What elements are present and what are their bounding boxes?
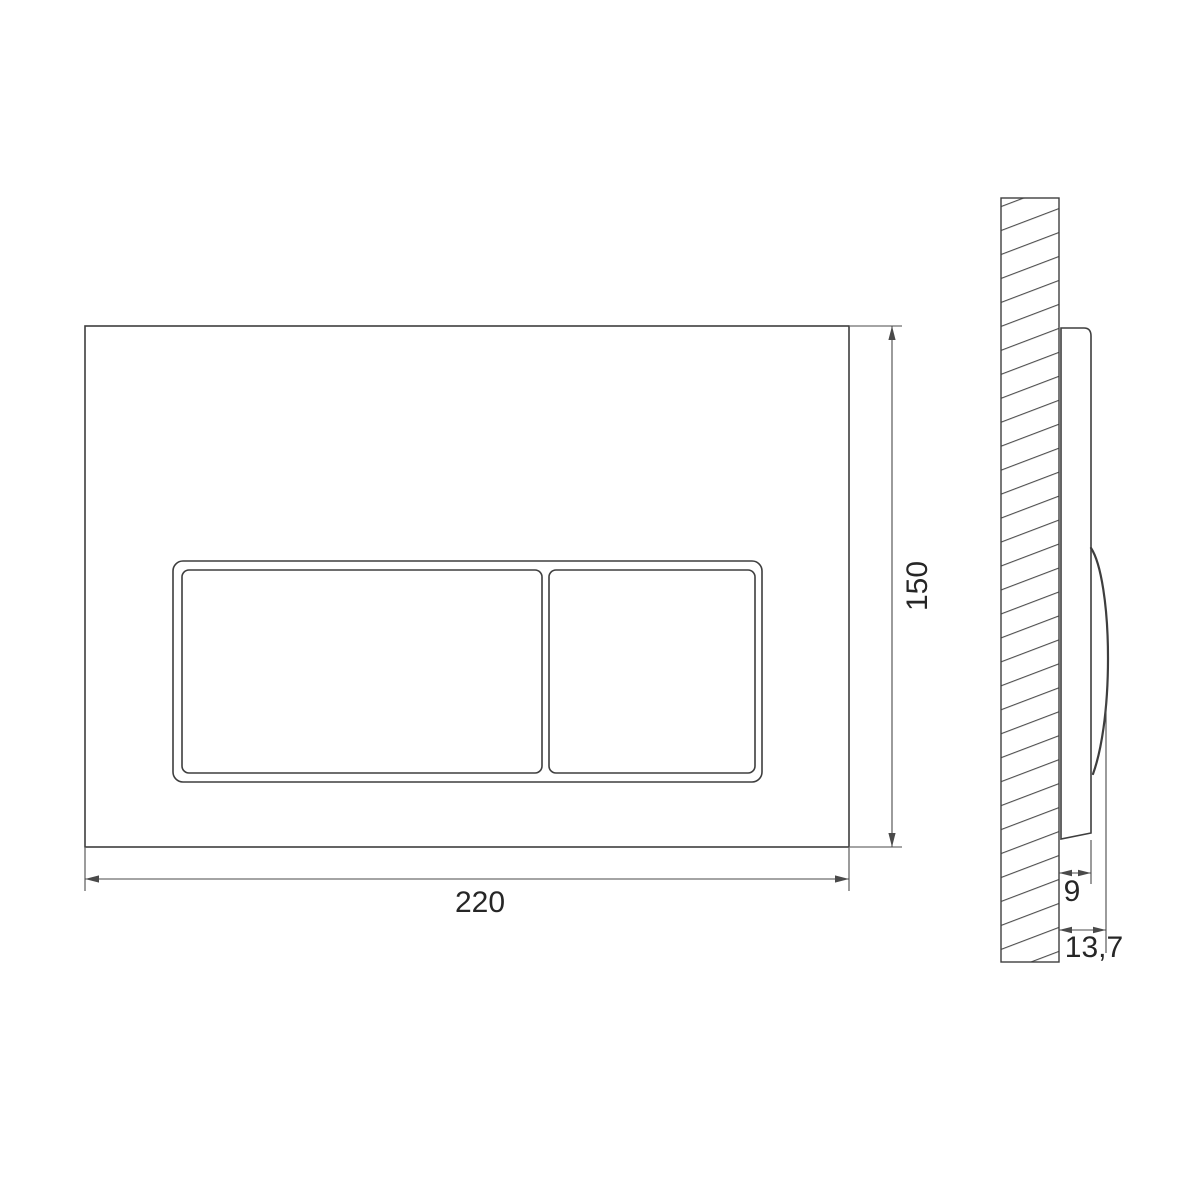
dim-height: 150 [850, 326, 934, 847]
wall-section-hatched [1001, 198, 1059, 962]
dim-height-arrow-bottom [888, 833, 895, 847]
dim-plate-depth-label: 9 [1064, 875, 1081, 908]
dim-height-arrow-top [888, 326, 895, 340]
technical-drawing-canvas: 220 150 [0, 0, 1200, 1200]
side-view: 9 13,7 [1001, 198, 1123, 964]
dim-height-label: 150 [901, 561, 934, 611]
flush-plate-dimension-drawing: 220 150 [0, 0, 1200, 1200]
dim-width-label: 220 [455, 886, 505, 919]
dim-plate-depth: 9 [1059, 840, 1091, 908]
dim-width: 220 [85, 848, 849, 919]
dim-width-arrow-right [835, 875, 849, 882]
button-small [549, 570, 755, 773]
dim-total-depth-label: 13,7 [1065, 931, 1123, 964]
plate-front-outline [85, 326, 849, 847]
front-view: 220 150 [85, 326, 934, 919]
dim-width-arrow-left [85, 875, 99, 882]
plate-side-profile [1061, 328, 1091, 839]
button-large [182, 570, 542, 773]
button-recess-frame [173, 561, 762, 782]
